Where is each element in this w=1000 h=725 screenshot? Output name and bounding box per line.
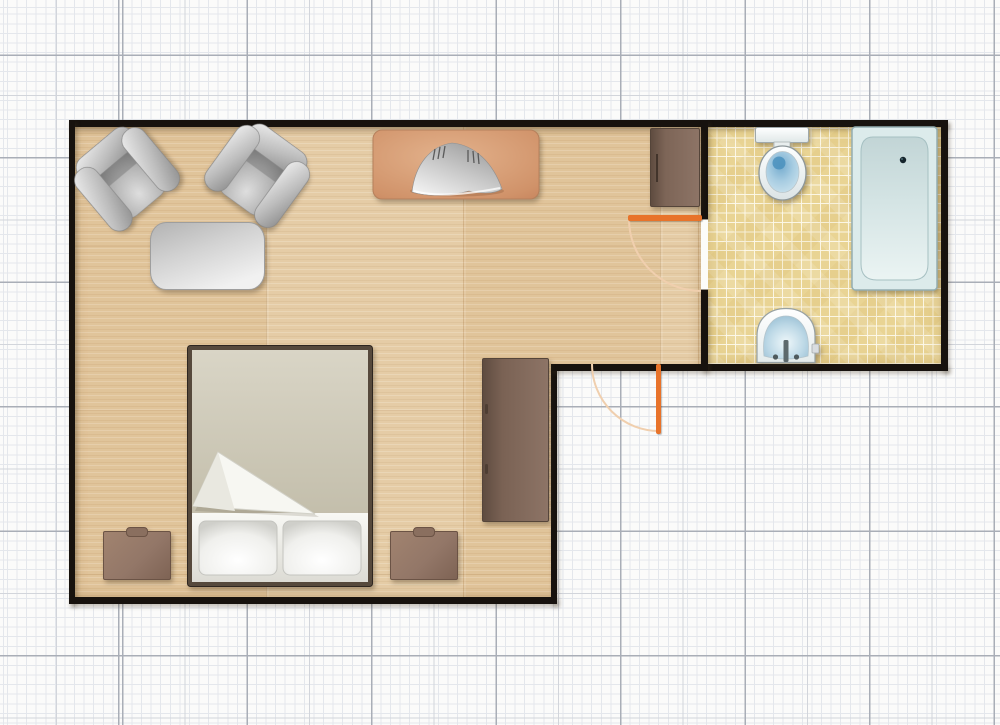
- wall-bathroom-left-upper[interactable]: [701, 120, 708, 219]
- floorplan-canvas: [0, 0, 1000, 725]
- bathroom-door-leaf[interactable]: [628, 215, 702, 221]
- wall-left[interactable]: [69, 120, 75, 604]
- toilet-icon: [753, 126, 813, 202]
- bathtub-icon: [851, 126, 938, 291]
- bathtub[interactable]: [851, 126, 938, 291]
- entry-door-swing-arc: [588, 360, 664, 436]
- wall-bathroom-right[interactable]: [941, 120, 948, 371]
- nightstand-handle: [126, 527, 148, 537]
- hall-cabinet[interactable]: [650, 128, 700, 207]
- wardrobe-handle: [485, 404, 488, 414]
- cabinet-handle: [656, 154, 658, 182]
- fireplace[interactable]: [372, 129, 540, 200]
- nightstand-handle: [413, 527, 435, 537]
- toilet[interactable]: [753, 126, 813, 202]
- bathroom-door-swing-arc: [620, 212, 710, 302]
- wall-top[interactable]: [69, 120, 948, 127]
- coffee-table[interactable]: [150, 222, 265, 290]
- nightstand[interactable]: [103, 531, 171, 580]
- sink-icon: [752, 304, 820, 364]
- wall-bottom-main[interactable]: [69, 597, 557, 604]
- double-bed[interactable]: [187, 345, 373, 587]
- wardrobe-handle: [485, 464, 488, 474]
- wall-right-lower[interactable]: [551, 364, 557, 604]
- wardrobe[interactable]: [482, 358, 549, 522]
- nightstand[interactable]: [390, 531, 458, 580]
- fireplace-icon: [372, 129, 540, 200]
- bed-icon: [187, 345, 373, 587]
- entry-door-leaf[interactable]: [656, 364, 661, 434]
- sink[interactable]: [752, 304, 820, 364]
